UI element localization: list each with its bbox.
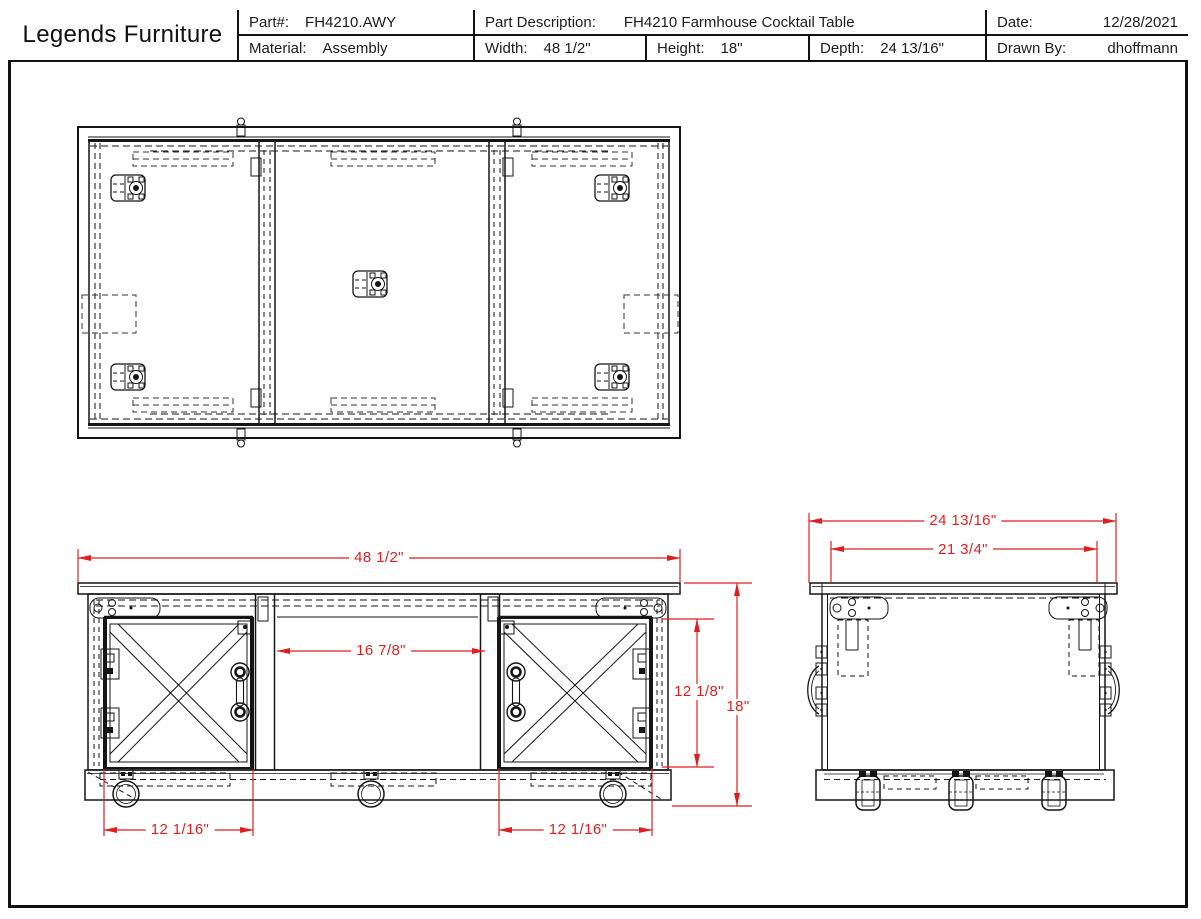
width-cell: Width: 48 1/2": [473, 36, 645, 62]
dimension-side-inner-depth: 21 3/4": [933, 542, 993, 558]
part-number-label: Part#:: [249, 14, 289, 31]
front-left-door: [104, 618, 253, 768]
drawing-sheet: { "sheet": { "company": "Legends Furnitu…: [0, 0, 1201, 919]
dimension-front-overall-height: 18": [721, 699, 754, 715]
dimension-front-overall-width: 48 1/2": [349, 550, 409, 566]
title-block: Legends Furniture Part#: FH4210.AWY Part…: [8, 10, 1188, 62]
dimension-front-door-height: 12 1/8": [669, 684, 729, 700]
side-carcass: [808, 583, 1120, 770]
date-cell: Date: 12/28/2021: [985, 10, 1188, 36]
date-value: 12/28/2021: [1103, 14, 1178, 31]
drawn-by-value: dhoffmann: [1107, 40, 1178, 57]
part-description-value: FH4210 Farmhouse Cocktail Table: [624, 14, 855, 31]
side-caster-left: [856, 771, 880, 810]
side-caster-center: [949, 771, 973, 810]
right-door-hinge-top: [633, 649, 651, 679]
height-value: 18": [721, 40, 743, 57]
front-caster-right: [600, 770, 626, 807]
width-value: 48 1/2": [544, 40, 591, 57]
part-number-cell: Part#: FH4210.AWY: [237, 10, 473, 36]
dimension-front-right-door-width: 12 1/16": [544, 822, 613, 838]
part-number-value: FH4210.AWY: [305, 14, 396, 31]
depth-label: Depth:: [820, 40, 864, 57]
drawn-by-cell: Drawn By: dhoffmann: [985, 36, 1188, 62]
width-label: Width:: [485, 40, 528, 57]
plan-caster-symbols: [111, 175, 629, 390]
dimension-side-overall-depth: 24 13/16": [924, 513, 1001, 529]
height-cell: Height: 18": [645, 36, 808, 62]
front-view-drawing: [60, 540, 760, 845]
drawn-by-label: Drawn By:: [997, 40, 1066, 57]
left-door-handle: [231, 663, 249, 721]
right-door-handle: [507, 663, 525, 721]
depth-cell: Depth: 24 13/16": [808, 36, 985, 62]
height-label: Height:: [657, 40, 705, 57]
material-value: Assembly: [323, 40, 388, 57]
date-label: Date:: [997, 14, 1033, 31]
side-caster-right: [1042, 771, 1066, 810]
top-view-drawing: [70, 115, 692, 450]
material-cell: Material: Assembly: [237, 36, 473, 62]
company-name: Legends Furniture: [8, 10, 237, 62]
front-carcass: [78, 583, 680, 770]
front-right-door: [498, 618, 652, 768]
dimension-front-center-opening: 16 7/8": [351, 643, 411, 659]
dimension-front-left-door-width: 12 1/16": [146, 822, 215, 838]
front-caster-center: [358, 770, 384, 807]
plan-partitions: [251, 141, 513, 424]
front-caster-left: [113, 770, 139, 807]
right-door-hinge-bottom: [633, 708, 651, 738]
side-edge-hardware: [816, 646, 1111, 716]
part-description-cell: Part Description: FH4210 Farmhouse Cockt…: [473, 10, 985, 36]
depth-value: 24 13/16": [880, 40, 944, 57]
part-description-label: Part Description:: [485, 14, 596, 31]
material-label: Material:: [249, 40, 307, 57]
